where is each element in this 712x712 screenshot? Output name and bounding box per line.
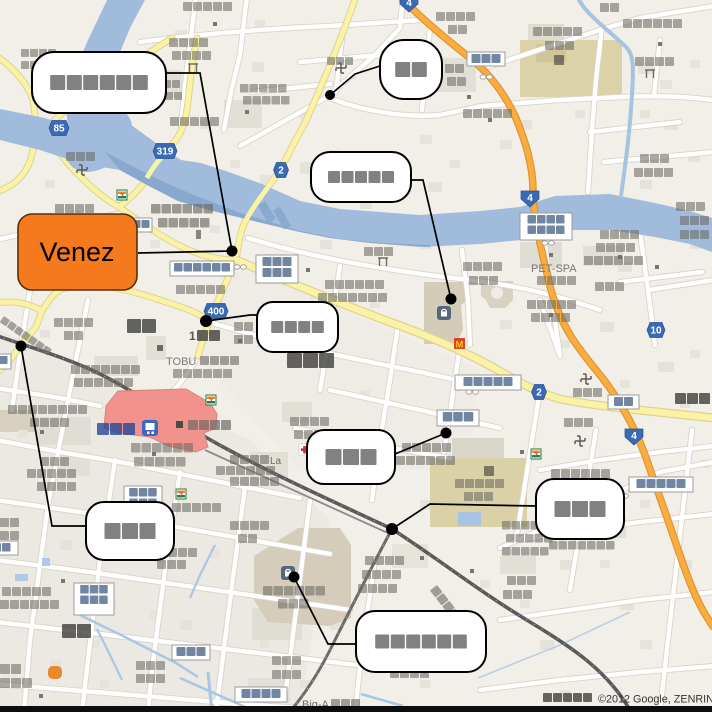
- svg-text:4: 4: [406, 0, 412, 9]
- svg-text:4: 4: [527, 193, 533, 204]
- svg-text:7: 7: [179, 490, 183, 499]
- svg-text:7: 7: [120, 191, 124, 200]
- svg-text:M: M: [456, 340, 464, 351]
- svg-text:400: 400: [208, 306, 225, 317]
- svg-text:85: 85: [53, 123, 65, 134]
- svg-text:La: La: [270, 456, 282, 467]
- svg-text:2: 2: [278, 165, 284, 176]
- svg-text:7: 7: [534, 450, 538, 459]
- svg-text:TOBU: TOBU: [166, 356, 196, 368]
- svg-text:4: 4: [631, 431, 637, 442]
- svg-text:©2012 Google, ZENRIN -: ©2012 Google, ZENRIN -: [598, 694, 712, 706]
- svg-text:10: 10: [650, 325, 662, 336]
- svg-text:7: 7: [209, 396, 213, 405]
- svg-text:319: 319: [157, 146, 174, 157]
- svg-text:Venez: Venez: [39, 237, 114, 267]
- svg-text:2: 2: [536, 387, 542, 398]
- svg-text:1: 1: [189, 329, 196, 343]
- svg-text:PET-SPA: PET-SPA: [531, 263, 577, 275]
